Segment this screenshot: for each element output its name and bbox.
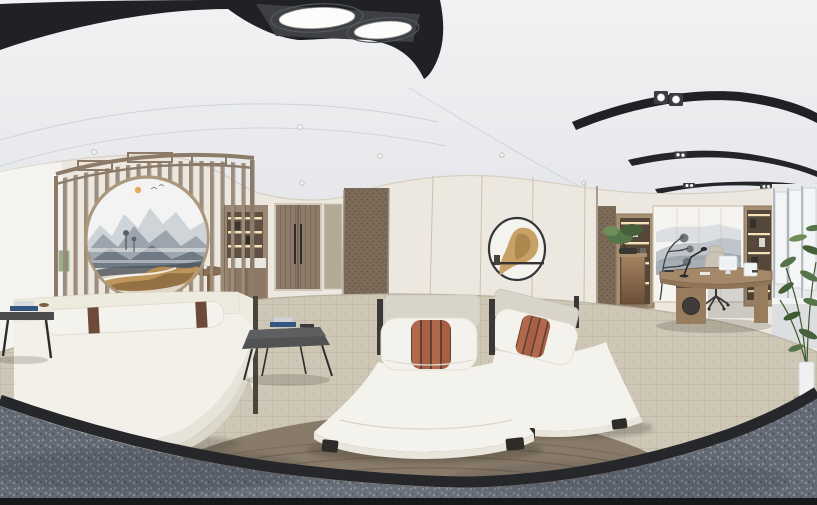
art-knob (494, 255, 500, 265)
track-light-icon (686, 184, 689, 187)
desk-keyboard (664, 270, 674, 272)
book-stack (14, 301, 34, 306)
pillow-stripes (411, 320, 451, 369)
track-light-icon (767, 185, 770, 188)
under-desk-shade (708, 286, 754, 318)
bonsai-pot (619, 248, 637, 254)
bed-foot (505, 437, 524, 451)
pine-crown (132, 237, 137, 242)
track-light-icon (672, 96, 680, 104)
lit-shelf (748, 214, 770, 216)
book-stack (274, 318, 292, 323)
track-light-icon (676, 153, 679, 156)
downlight-icon (92, 150, 97, 155)
desk-notepad (700, 272, 710, 275)
track-light-housing (674, 152, 687, 159)
accent-texture (344, 188, 389, 300)
panel-trim (343, 190, 344, 298)
lamp-base (680, 275, 689, 278)
desk-leg-panel (754, 281, 768, 323)
lit-shelf (748, 233, 770, 235)
pine-crown (123, 230, 129, 236)
bonsai-foliage (621, 224, 643, 236)
stripe (432, 320, 440, 369)
window-wall (772, 184, 817, 348)
mural-foliage (680, 234, 689, 243)
coffee-table-shadow (246, 374, 330, 386)
panel-trim (388, 188, 389, 300)
roller-blind (775, 192, 787, 284)
bed-foot (611, 418, 627, 430)
mist-band (87, 260, 207, 263)
panorama-canvas (0, 0, 817, 505)
track-light-icon (657, 94, 665, 102)
desk-phone (752, 270, 758, 273)
decor-tray (300, 324, 314, 328)
panorama-360-spa-room (0, 0, 817, 505)
entry-doors (274, 203, 342, 291)
downlight-icon (500, 153, 504, 157)
track-light-icon (763, 185, 766, 188)
downlight-icon (300, 181, 304, 185)
lamp-head (701, 247, 707, 251)
cabinet-speaker-circle (683, 298, 700, 315)
mist-band (87, 248, 207, 252)
sun-icon (135, 187, 141, 193)
bed-frame-post (489, 299, 495, 355)
downlight-icon (298, 125, 303, 130)
monitor-screen (721, 258, 736, 268)
bed-foot (321, 439, 338, 453)
stripe (442, 320, 450, 369)
round-wall-art (489, 218, 545, 280)
book-stack (10, 306, 38, 311)
shelf-item (750, 219, 756, 228)
mural-foliage (686, 245, 693, 252)
office-wallpaper-texture (598, 206, 616, 320)
side-door-panel (324, 204, 342, 289)
bolster-band (87, 307, 99, 334)
door-handle (300, 224, 302, 264)
moon-gate-painting (86, 177, 208, 300)
decor-bowl (39, 303, 49, 307)
monitor-stand (725, 270, 731, 274)
stripe (422, 320, 430, 369)
side-table-top (0, 312, 54, 320)
downlight-icon (378, 154, 383, 159)
bottom-edge-strip (0, 498, 817, 505)
track-light-icon (681, 154, 684, 157)
track-light-icon (690, 184, 693, 187)
bolster-band (195, 301, 207, 328)
bed-pillow (381, 318, 477, 370)
lit-shelf (621, 222, 649, 224)
track-light-housing (683, 183, 695, 188)
stripe (412, 320, 420, 369)
book-stack (270, 322, 296, 327)
desktop-printer (744, 263, 757, 276)
bronze-pedestal (621, 256, 645, 304)
shelf-item (759, 238, 765, 247)
bonsai-foliage (603, 226, 619, 236)
lit-shelf (748, 252, 770, 254)
door-handle (294, 224, 296, 264)
